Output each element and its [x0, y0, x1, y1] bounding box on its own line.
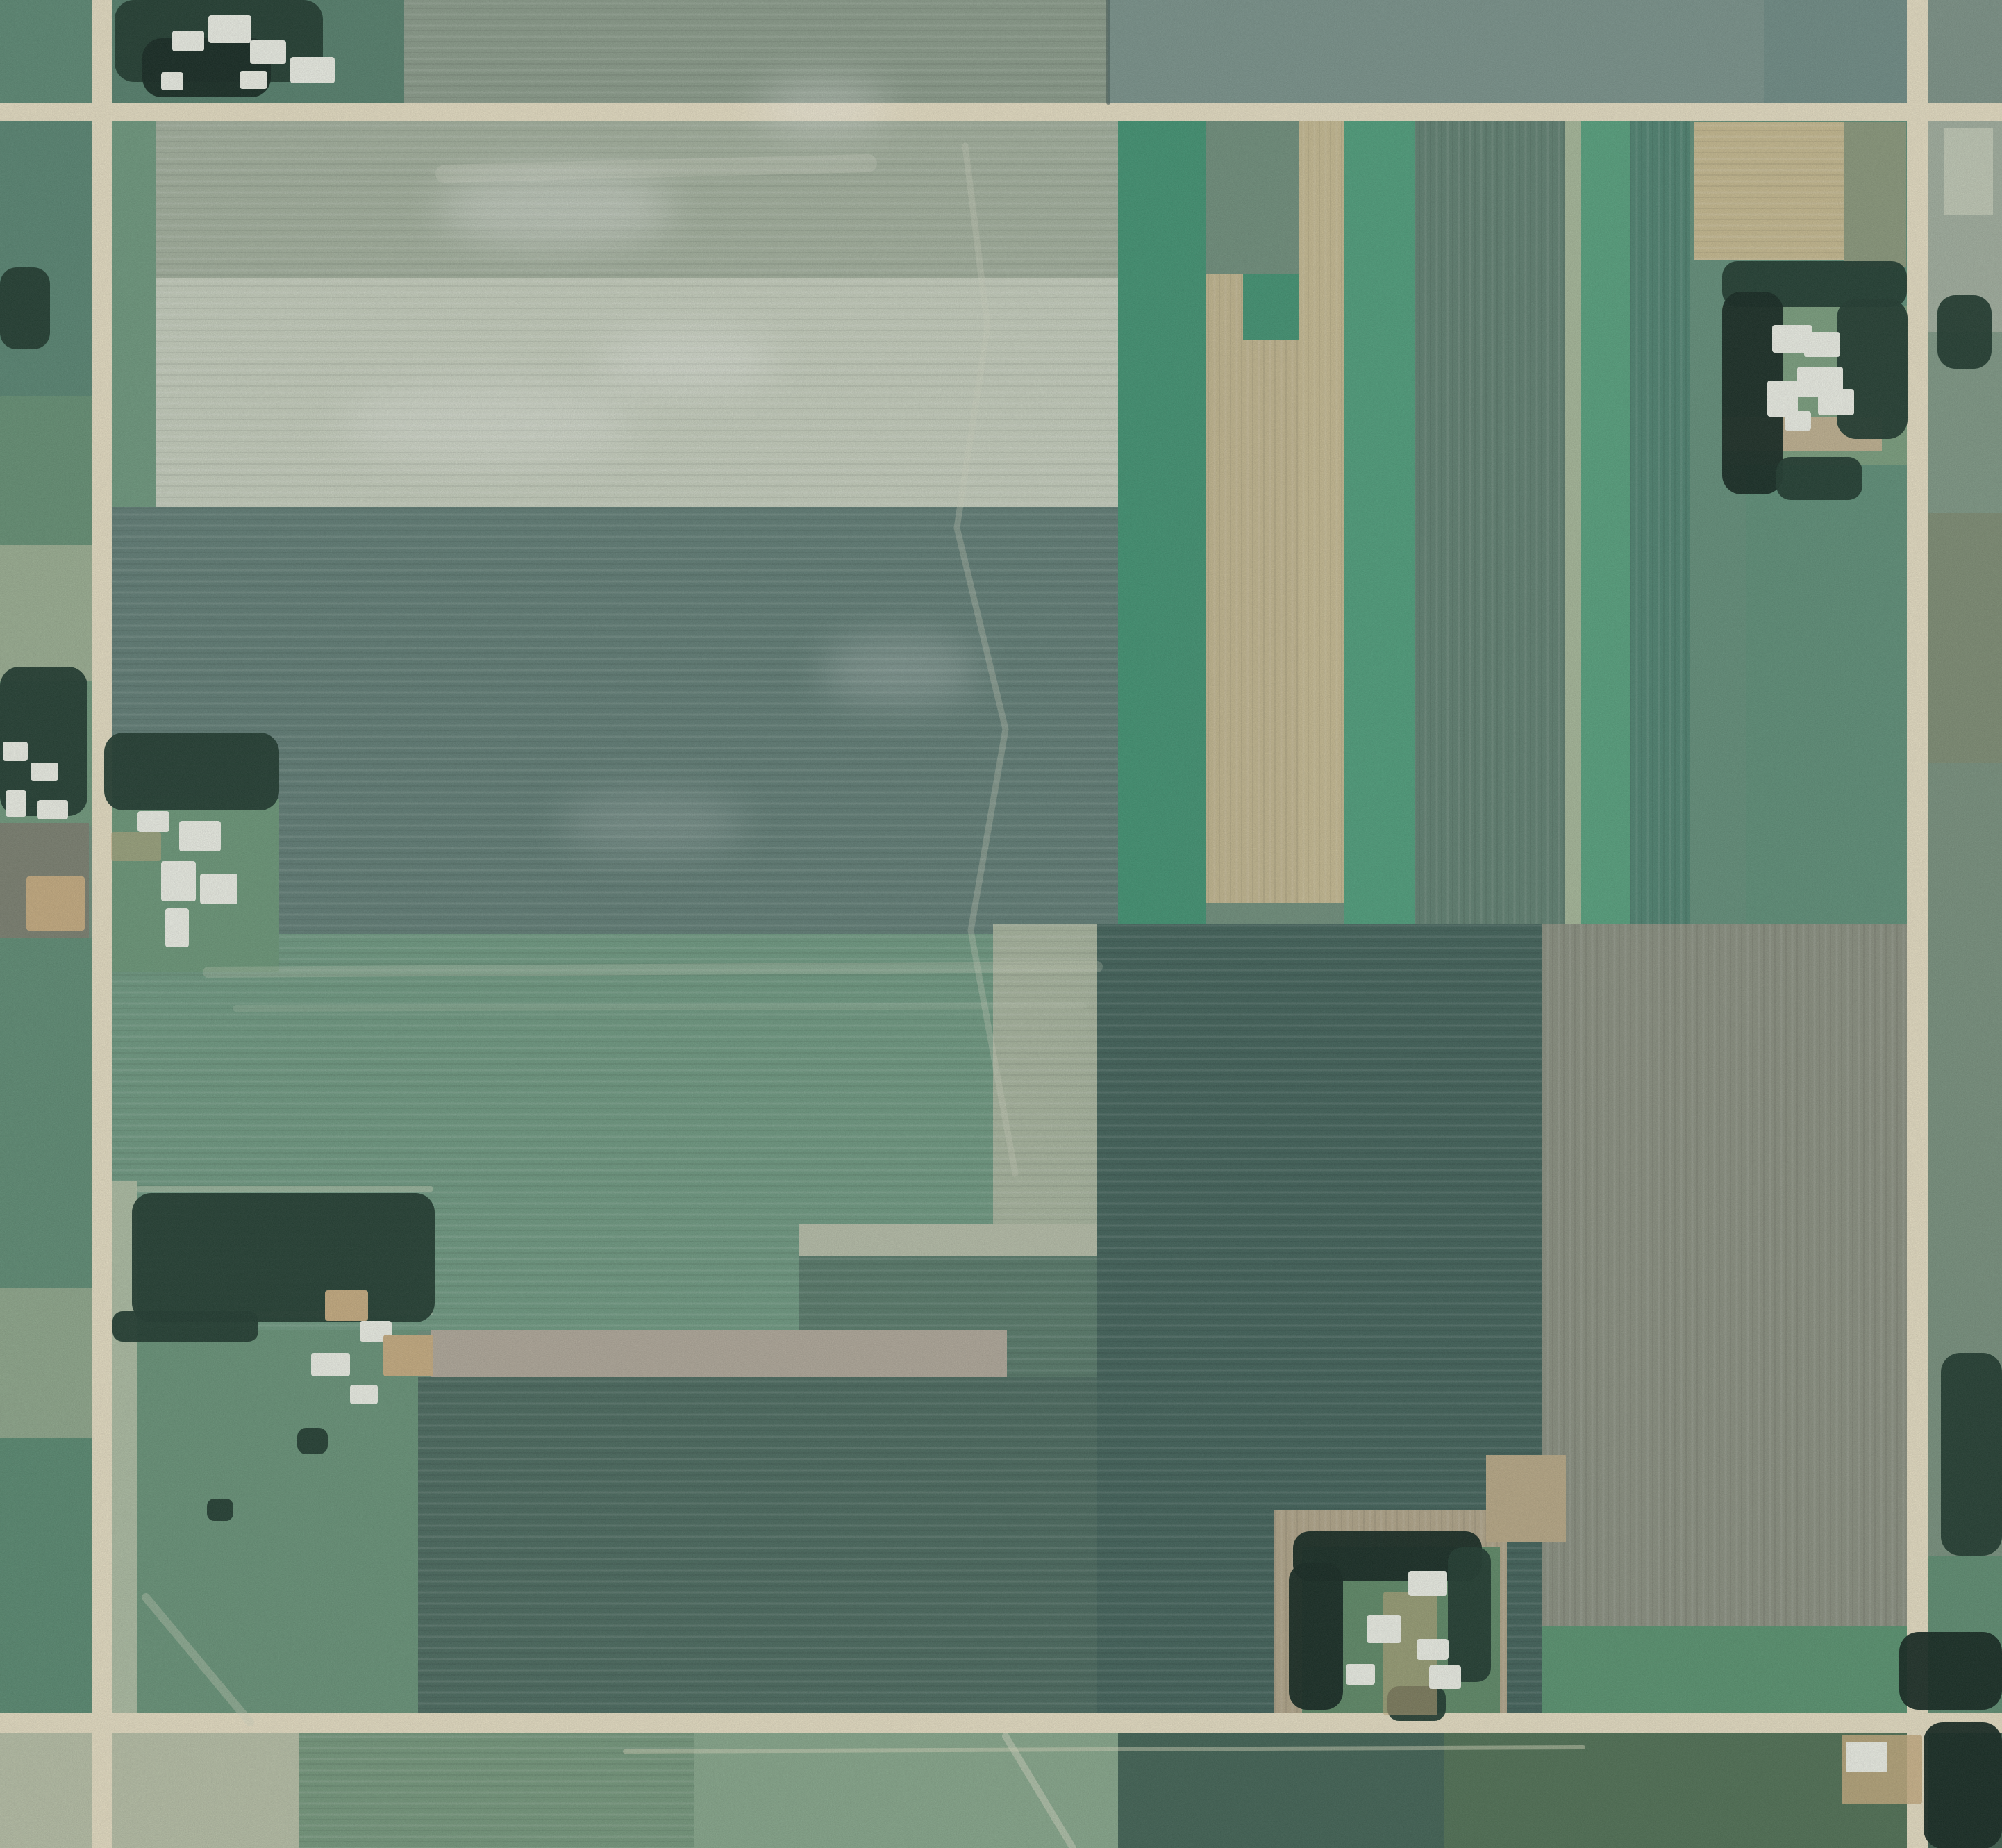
aerial-photo	[0, 0, 2002, 1848]
photo-grain-light	[0, 0, 2002, 1848]
aerial-photo-canvas	[0, 0, 2002, 1848]
